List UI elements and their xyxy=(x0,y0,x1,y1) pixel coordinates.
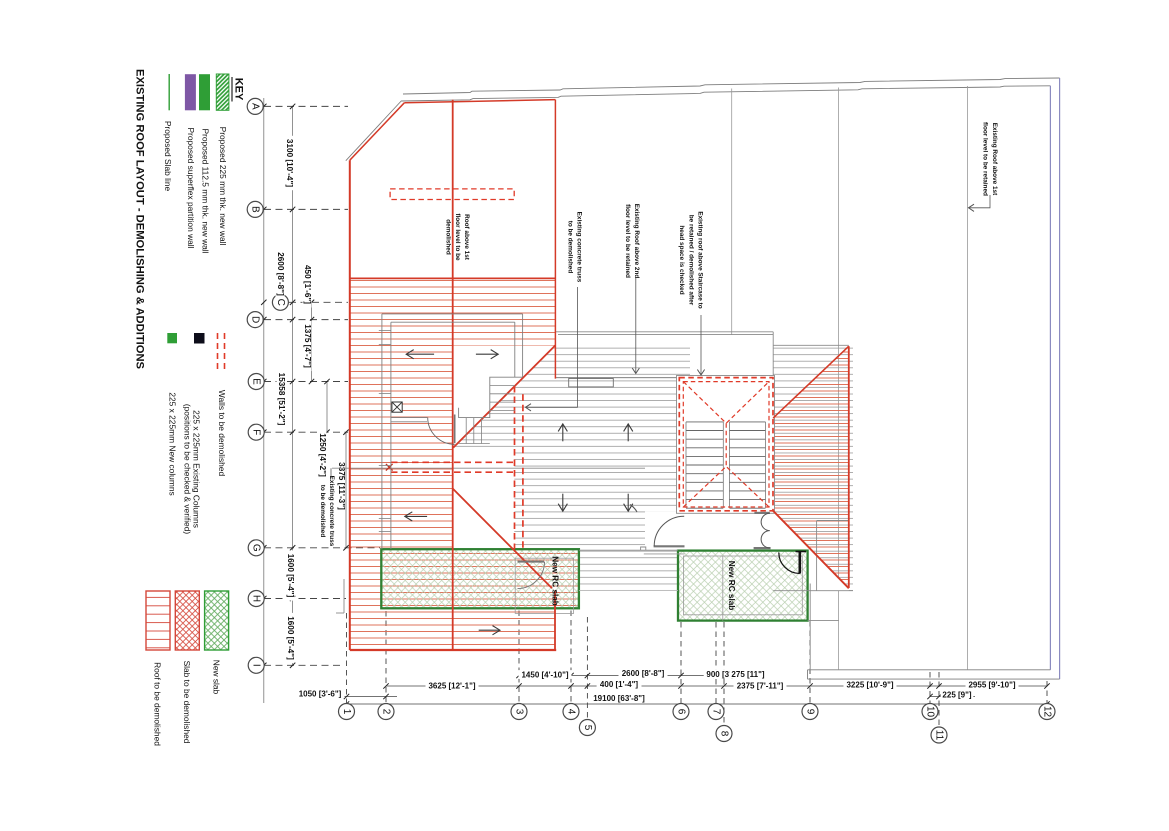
svg-text:Slab to be demolished: Slab to be demolished xyxy=(182,661,192,744)
svg-text:be retained / demolished after: be retained / demolished after xyxy=(687,215,694,306)
svg-text:I: I xyxy=(251,664,262,667)
svg-text:225 [9"]: 225 [9"] xyxy=(942,690,971,699)
svg-text:to be demolished: to be demolished xyxy=(566,221,573,274)
svg-text:2600 [8'-8"]: 2600 [8'-8"] xyxy=(622,669,665,678)
svg-text:5: 5 xyxy=(582,725,593,731)
svg-text:floor level to be retained: floor level to be retained xyxy=(624,204,631,278)
svg-text:C: C xyxy=(275,299,286,306)
svg-text:KEY: KEY xyxy=(233,78,245,101)
svg-text:Walls to be demolished: Walls to be demolished xyxy=(217,390,227,477)
svg-text:to be demolished: to be demolished xyxy=(319,485,326,538)
svg-text:A: A xyxy=(250,103,261,110)
svg-text:11: 11 xyxy=(934,730,945,741)
svg-text:Existing Roof above 2nd: Existing Roof above 2nd xyxy=(633,204,640,279)
svg-text:E: E xyxy=(251,378,262,385)
svg-text:H: H xyxy=(251,595,262,602)
svg-text:demolished: demolished xyxy=(445,219,452,255)
svg-text:(positions to be checked & ver: (positions to be checked & verified) xyxy=(182,404,192,535)
svg-text:3: 3 xyxy=(514,709,525,715)
svg-text:2: 2 xyxy=(381,709,392,715)
svg-text:2600 [8'-8"]: 2600 [8'-8"] xyxy=(276,252,285,296)
svg-text:Existing roof above Staircase: Existing roof above Staircase to xyxy=(697,211,704,308)
svg-text:12: 12 xyxy=(1042,706,1053,718)
svg-text:15358 [51'-2"]: 15358 [51'-2"] xyxy=(277,373,286,426)
svg-text:1600 [5'-4"]: 1600 [5'-4"] xyxy=(286,554,295,598)
svg-text:1: 1 xyxy=(341,709,352,715)
svg-text:B: B xyxy=(250,206,261,213)
svg-text:3625 [12'-1"]: 3625 [12'-1"] xyxy=(428,681,475,690)
svg-text:floor level to be retained: floor level to be retained xyxy=(982,122,989,196)
svg-text:1600 [5'-4"]: 1600 [5'-4"] xyxy=(286,616,295,660)
svg-text:1250 [4'-2"]: 1250 [4'-2"] xyxy=(318,433,327,477)
svg-text:Proposed Slab line: Proposed Slab line xyxy=(163,121,173,192)
svg-text:3225 [10'-9"]: 3225 [10'-9"] xyxy=(846,680,893,689)
svg-text:450 [1'-6"]: 450 [1'-6"] xyxy=(303,265,312,304)
svg-text:Proposed 225 mm thk. new wall: Proposed 225 mm thk. new wall xyxy=(218,127,228,246)
svg-text:2955 [9'-10"]: 2955 [9'-10"] xyxy=(968,680,1015,689)
svg-text:1050 [3'-6"]: 1050 [3'-6"] xyxy=(299,689,342,698)
svg-text:275 [11"]: 275 [11"] xyxy=(731,670,764,679)
svg-text:1450 [4'-10"]: 1450 [4'-10"] xyxy=(521,670,568,679)
svg-text:F: F xyxy=(251,429,262,435)
svg-text:head space is checked: head space is checked xyxy=(678,225,685,294)
svg-text:Roof above 1st: Roof above 1st xyxy=(463,214,470,261)
svg-text:8: 8 xyxy=(719,731,730,737)
svg-text:225 x 225mm New columns: 225 x 225mm New columns xyxy=(168,392,178,495)
svg-text:4: 4 xyxy=(566,709,577,715)
svg-text:9: 9 xyxy=(805,709,816,715)
svg-text:New RC slab: New RC slab xyxy=(727,561,736,611)
svg-text:Existing Roof above 1st: Existing Roof above 1st xyxy=(991,123,998,196)
svg-text:G: G xyxy=(251,544,262,552)
svg-text:New RC slab: New RC slab xyxy=(550,556,559,606)
svg-text:Roof to be demolished: Roof to be demolished xyxy=(152,662,162,746)
svg-text:floor level to be: floor level to be xyxy=(454,213,461,261)
svg-text:3375 [11'-3"]: 3375 [11'-3"] xyxy=(337,462,346,510)
svg-text:Existing concrete truss: Existing concrete truss xyxy=(576,212,583,283)
svg-text:Proposed superflex partition w: Proposed superflex partition wall xyxy=(186,127,196,248)
svg-text:1375 [4'-7"]: 1375 [4'-7"] xyxy=(303,324,312,368)
svg-text:10: 10 xyxy=(925,706,936,718)
svg-text:7: 7 xyxy=(711,709,722,715)
svg-text:Proposed 112.5 mm thk. new wal: Proposed 112.5 mm thk. new wall xyxy=(201,128,211,253)
svg-text:EXISTING ROOF LAYOUT - DEMOLIS: EXISTING ROOF LAYOUT - DEMOLISHING & ADD… xyxy=(134,69,146,370)
svg-text:3100 [10'-4"]: 3100 [10'-4"] xyxy=(285,139,294,187)
svg-text:Existing concrete truss: Existing concrete truss xyxy=(328,476,335,547)
svg-text:19100 [63'-8"]: 19100 [63'-8"] xyxy=(593,694,645,703)
svg-text:6: 6 xyxy=(676,709,687,715)
svg-text:2375 [7'-11"]: 2375 [7'-11"] xyxy=(737,681,784,690)
svg-text:400 [1'-4"]: 400 [1'-4"] xyxy=(600,680,638,689)
svg-text:D: D xyxy=(250,316,261,323)
svg-text:New slab: New slab xyxy=(211,660,221,695)
